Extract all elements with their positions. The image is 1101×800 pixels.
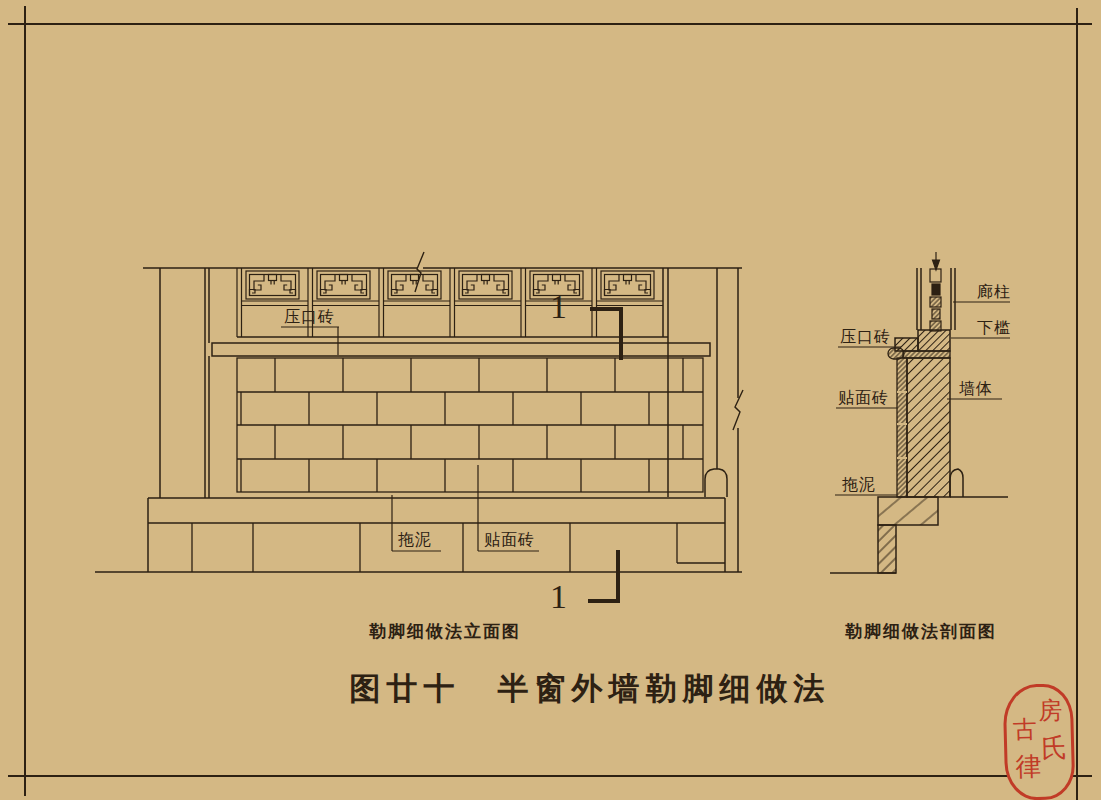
section-cut-mark-bottom	[588, 550, 618, 601]
tuoni-cap-section	[950, 469, 963, 497]
seal-character: 律	[1015, 749, 1042, 785]
section-label-tuoni: 拖泥	[842, 476, 876, 494]
section-label-qiangti: 墙体	[959, 380, 993, 398]
elevation-caption: 勒脚细做法立面图	[369, 620, 521, 643]
section-label-langzhu: 廊柱	[977, 283, 1011, 301]
window-frame-section	[930, 252, 941, 331]
left-pilaster	[160, 268, 209, 498]
seal-character: 房	[1038, 694, 1063, 727]
foundation-step	[878, 525, 896, 573]
section-label-xiakan: 下槛	[977, 319, 1011, 337]
section-label-tiemianzhuan: 贴面砖	[838, 389, 889, 407]
brick-veneer-wall	[237, 358, 703, 492]
window-sill-board	[212, 343, 710, 356]
stone-base-course	[192, 523, 725, 572]
elevation-label-tuoni: 拖泥	[398, 531, 432, 549]
lower-sill-block	[895, 330, 950, 351]
figure-title: 图廿十 半窗外墙勒脚细做法	[340, 668, 840, 710]
section-caption: 勒脚细做法剖面图	[845, 620, 997, 643]
seal-character: 氏	[1041, 730, 1068, 766]
elevation-label-yakouzhuan: 压口砖	[284, 308, 335, 326]
facing-brick-strip	[897, 358, 907, 497]
elevation-leaders	[281, 327, 539, 551]
elevation-view	[95, 252, 743, 601]
section-cut-mark-top	[590, 309, 621, 360]
tuoni-band	[148, 498, 725, 572]
section-label-yakouzhuan: 压口砖	[840, 328, 891, 346]
wall-body	[907, 358, 950, 497]
plinth-stone	[878, 497, 938, 525]
break-mark-top	[415, 252, 424, 292]
tuoni-end-cap	[705, 469, 727, 497]
elevation-label-tiemianzhuan: 贴面砖	[484, 531, 535, 549]
section-number-bottom: 1	[550, 578, 567, 616]
drawing-sheet: { "colors": { "background": "#d4b884", "…	[0, 0, 1101, 800]
seal-character: 古	[1012, 713, 1037, 746]
red-seal-stamp: 房 氏 古 律	[1002, 683, 1075, 800]
section-number-top: 1	[550, 288, 567, 326]
